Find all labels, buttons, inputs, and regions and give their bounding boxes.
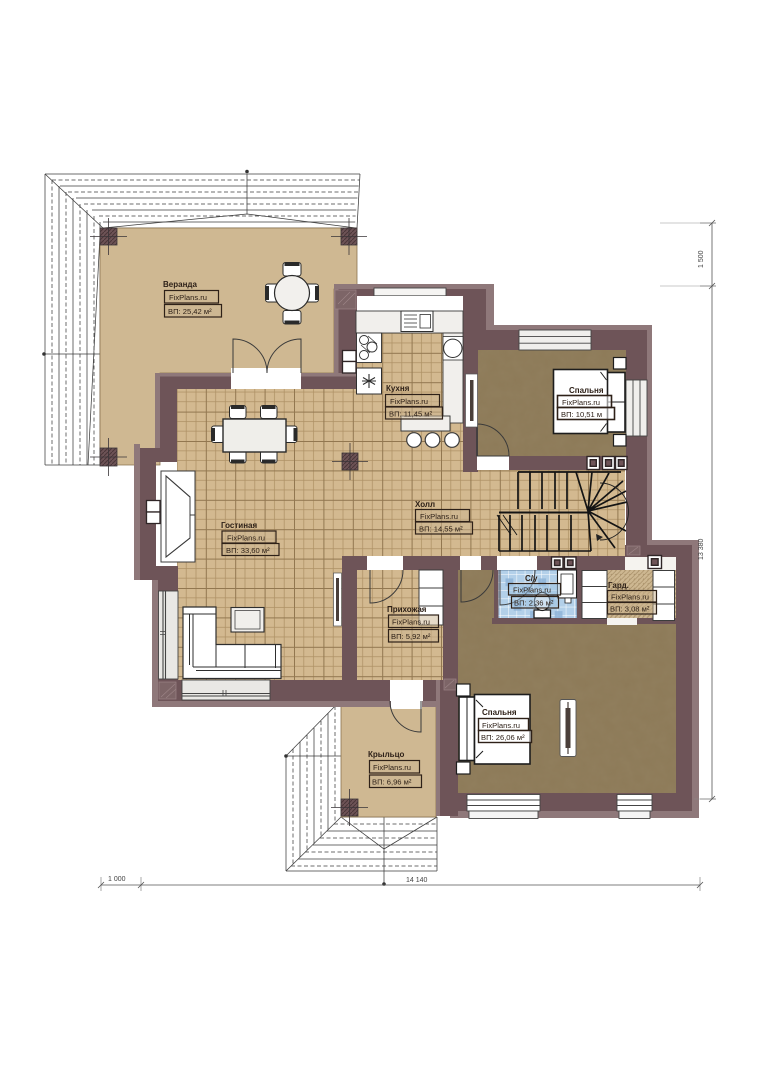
svg-text:ВП: 3,08 м²: ВП: 3,08 м² bbox=[610, 605, 650, 614]
svg-text:1 000: 1 000 bbox=[108, 876, 126, 883]
svg-text:FixPlans.ru: FixPlans.ru bbox=[373, 763, 411, 772]
svg-text:FixPlans.ru: FixPlans.ru bbox=[482, 721, 520, 730]
svg-text:FixPlans.ru: FixPlans.ru bbox=[169, 293, 207, 302]
svg-text:Спальня: Спальня bbox=[482, 708, 517, 717]
svg-text:FixPlans.ru: FixPlans.ru bbox=[562, 398, 600, 407]
svg-text:ВП: 2,36 м²: ВП: 2,36 м² bbox=[514, 599, 554, 608]
svg-text:FixPlans.ru: FixPlans.ru bbox=[611, 593, 649, 602]
svg-text:FixPlans.ru: FixPlans.ru bbox=[227, 534, 265, 543]
svg-text:ВП: 33,60 м²: ВП: 33,60 м² bbox=[226, 546, 270, 555]
svg-text:Крыльцо: Крыльцо bbox=[368, 750, 405, 759]
svg-text:Холл: Холл bbox=[415, 500, 435, 509]
svg-text:ВП: 5,92 м²: ВП: 5,92 м² bbox=[391, 632, 431, 641]
svg-text:Прихожая: Прихожая bbox=[387, 605, 427, 614]
svg-text:Кухня: Кухня bbox=[386, 384, 410, 393]
svg-text:Веранда: Веранда bbox=[163, 280, 197, 289]
svg-text:Гостиная: Гостиная bbox=[221, 521, 257, 530]
svg-text:Спальня: Спальня bbox=[569, 386, 604, 395]
svg-text:ВП: 6,96 м²: ВП: 6,96 м² bbox=[372, 778, 412, 787]
svg-text:ВП: 25,42 м²: ВП: 25,42 м² bbox=[168, 307, 212, 316]
svg-text:ВП: 10,51 м: ВП: 10,51 м bbox=[561, 410, 602, 419]
svg-text:1 500: 1 500 bbox=[698, 250, 705, 268]
svg-text:ВП: 26,06 м²: ВП: 26,06 м² bbox=[481, 733, 525, 742]
svg-text:ВП: 14,55 м²: ВП: 14,55 м² bbox=[419, 525, 463, 534]
svg-text:14 140: 14 140 bbox=[406, 877, 428, 884]
svg-text:ВП: 11,45 м²: ВП: 11,45 м² bbox=[389, 410, 433, 419]
svg-text:С/у: С/у bbox=[525, 574, 538, 583]
svg-text:FixPlans.ru: FixPlans.ru bbox=[392, 618, 430, 627]
svg-text:13 380: 13 380 bbox=[698, 538, 705, 560]
svg-text:FixPlans.ru: FixPlans.ru bbox=[390, 397, 428, 406]
svg-text:FixPlans.ru: FixPlans.ru bbox=[513, 586, 551, 595]
svg-text:Гард.: Гард. bbox=[608, 581, 629, 590]
svg-text:FixPlans.ru: FixPlans.ru bbox=[420, 512, 458, 521]
